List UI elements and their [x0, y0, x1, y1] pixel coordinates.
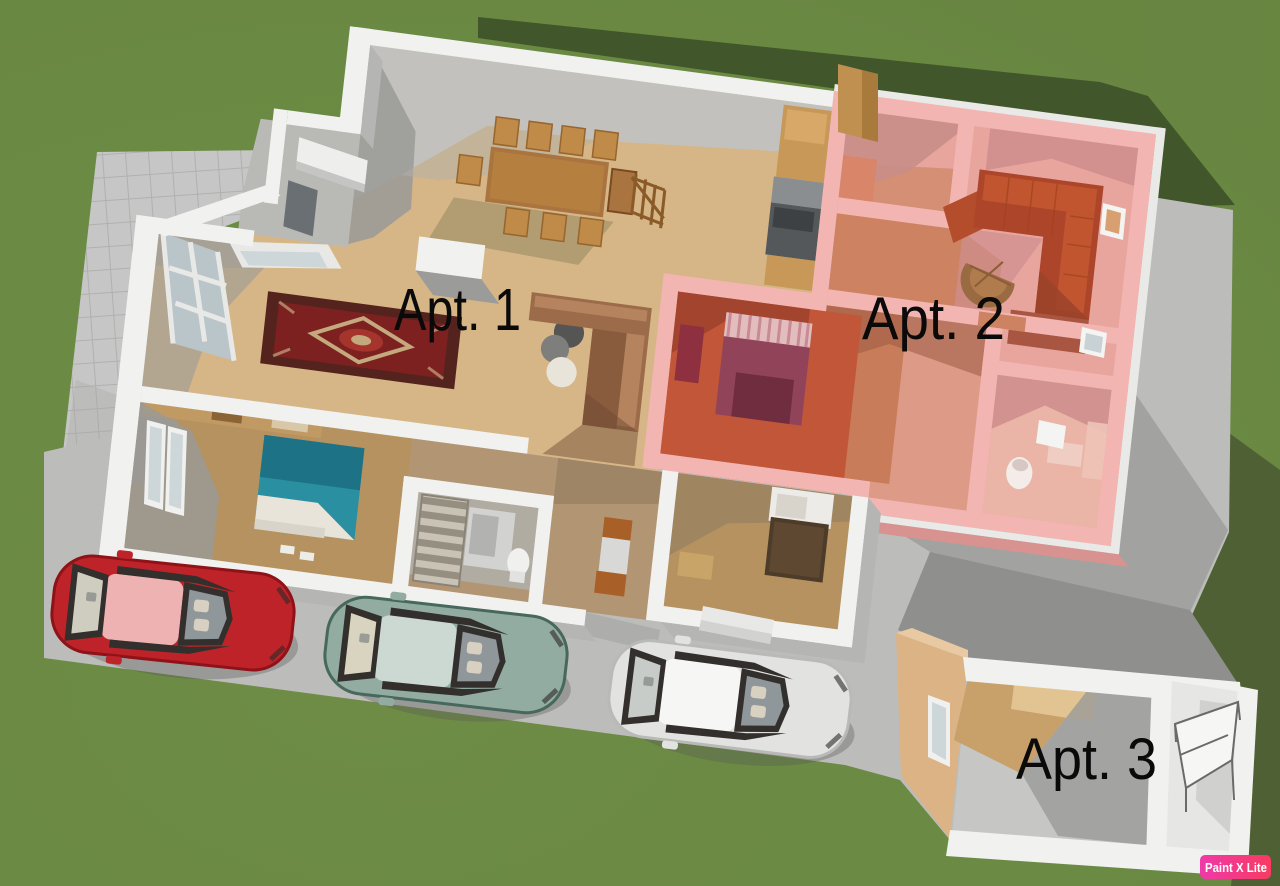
svg-text:Apt. 3: Apt. 3	[1016, 727, 1157, 792]
svg-text:Paint X Lite: Paint X Lite	[1205, 861, 1267, 875]
svg-text:Apt. 2: Apt. 2	[862, 285, 1005, 352]
svg-text:Apt. 1: Apt. 1	[394, 277, 521, 343]
